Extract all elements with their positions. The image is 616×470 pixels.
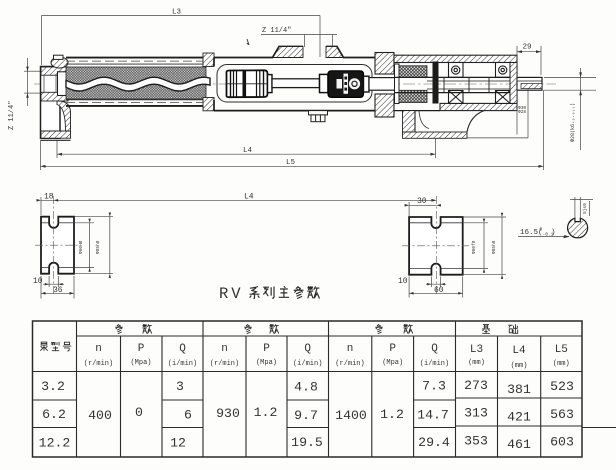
svg-text:L4: L4 (512, 345, 526, 357)
svg-text:14.7: 14.7 (417, 408, 449, 423)
svg-text:L5: L5 (286, 159, 296, 167)
svg-text:563: 563 (550, 407, 574, 422)
svg-text:29.4: 29.4 (418, 435, 450, 450)
svg-text:3.2: 3.2 (41, 379, 65, 394)
svg-text:L3: L3 (172, 9, 182, 17)
svg-text:60: 60 (434, 286, 444, 295)
svg-text:(i/min): (i/min) (293, 360, 322, 368)
svg-text:5js9: 5js9 (582, 203, 588, 214)
svg-text:3: 3 (176, 379, 184, 394)
svg-text:L3: L3 (470, 344, 483, 356)
svg-text:Z 11/4": Z 11/4" (262, 27, 291, 35)
svg-text:L4: L4 (243, 147, 253, 155)
svg-text:400: 400 (88, 408, 112, 423)
svg-text:P: P (263, 343, 270, 355)
svg-text:(Mpa): (Mpa) (256, 359, 277, 367)
svg-text:523: 523 (550, 379, 574, 394)
svg-text:4.8: 4.8 (294, 380, 318, 395)
svg-text:L5: L5 (555, 344, 568, 356)
svg-text:Φ60H8: Φ60H8 (78, 240, 84, 254)
svg-text:(mm): (mm) (468, 359, 485, 367)
svg-text:29: 29 (523, 44, 532, 52)
svg-text:36: 36 (53, 286, 63, 295)
svg-text:(mm): (mm) (511, 362, 528, 370)
svg-text:P: P (138, 343, 145, 355)
svg-text:12.2: 12.2 (39, 436, 71, 451)
svg-text:1.2: 1.2 (380, 407, 404, 422)
svg-text:(r/min): (r/min) (335, 360, 364, 368)
svg-text:n: n (347, 343, 354, 355)
svg-text:273: 273 (464, 378, 488, 393)
svg-text:0: 0 (135, 405, 143, 420)
svg-text:421: 421 (507, 410, 531, 425)
svg-text:353: 353 (464, 434, 488, 449)
svg-text:6.2: 6.2 (42, 407, 66, 422)
svg-text:19.5: 19.5 (291, 435, 323, 450)
svg-text:Q: Q (304, 343, 311, 355)
svg-text:L4: L4 (244, 193, 254, 202)
svg-text:7.3: 7.3 (422, 379, 446, 394)
svg-text:930: 930 (216, 406, 240, 421)
svg-text:603: 603 (550, 435, 574, 450)
svg-text:): ) (551, 229, 556, 237)
svg-text:1400: 1400 (335, 408, 367, 423)
svg-text:(i/min): (i/min) (168, 360, 197, 368)
svg-text:(r/min): (r/min) (210, 360, 239, 368)
svg-text:6: 6 (184, 408, 192, 423)
svg-text:Φ60f8: Φ60f8 (471, 240, 477, 254)
svg-text:RV: RV (219, 285, 244, 303)
svg-text:P: P (389, 343, 396, 355)
svg-text:30: 30 (417, 197, 427, 206)
svg-text:Φ85h8: Φ85h8 (491, 240, 497, 254)
svg-text:Φ28: Φ28 (518, 109, 526, 115)
svg-text:Φ85h8: Φ85h8 (95, 240, 101, 254)
svg-text:Q: Q (179, 343, 186, 355)
svg-text:(Mpa): (Mpa) (382, 359, 403, 367)
svg-text:(r/min): (r/min) (84, 360, 113, 368)
svg-text:Q: Q (431, 343, 438, 355)
svg-text:313: 313 (464, 406, 488, 421)
svg-text:Φ28(k6₊₀.₀₁₁): Φ28(k6₊₀.₀₁₁) (570, 103, 576, 142)
svg-text:(Mpa): (Mpa) (130, 359, 151, 367)
svg-text:Z 11/4": Z 11/4" (8, 101, 16, 130)
svg-text:10: 10 (33, 277, 43, 286)
svg-text:n: n (95, 343, 102, 355)
svg-text:9.7: 9.7 (294, 408, 318, 423)
svg-text:381: 381 (507, 382, 531, 397)
svg-text:461: 461 (507, 437, 531, 452)
svg-text:12: 12 (170, 436, 186, 451)
svg-text:n: n (221, 343, 228, 355)
svg-text:(i/min): (i/min) (420, 360, 449, 368)
svg-text:(mm): (mm) (553, 360, 570, 368)
svg-text:10: 10 (398, 277, 408, 286)
svg-text:1.2: 1.2 (254, 405, 278, 420)
svg-text:18: 18 (44, 193, 54, 202)
